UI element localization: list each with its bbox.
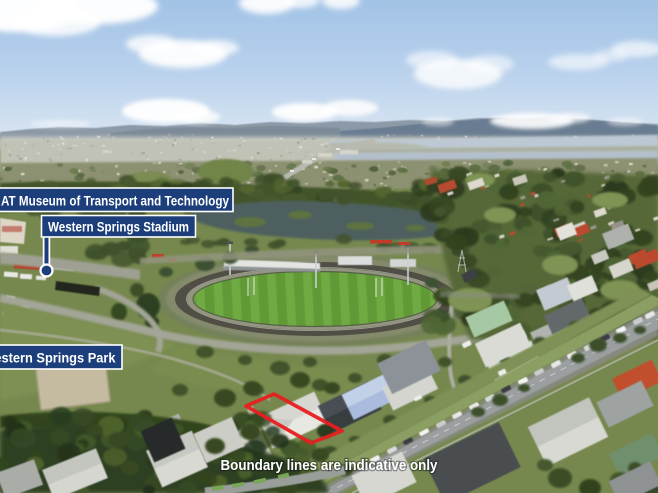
svg-text:Western Springs Stadium: Western Springs Stadium bbox=[48, 220, 189, 235]
svg-text:Western Springs Park: Western Springs Park bbox=[0, 351, 116, 366]
svg-text:AT Museum of Transport and Tec: AT Museum of Transport and Technology bbox=[1, 194, 229, 209]
svg-text:Boundary lines are indicative: Boundary lines are indicative only bbox=[221, 458, 438, 474]
